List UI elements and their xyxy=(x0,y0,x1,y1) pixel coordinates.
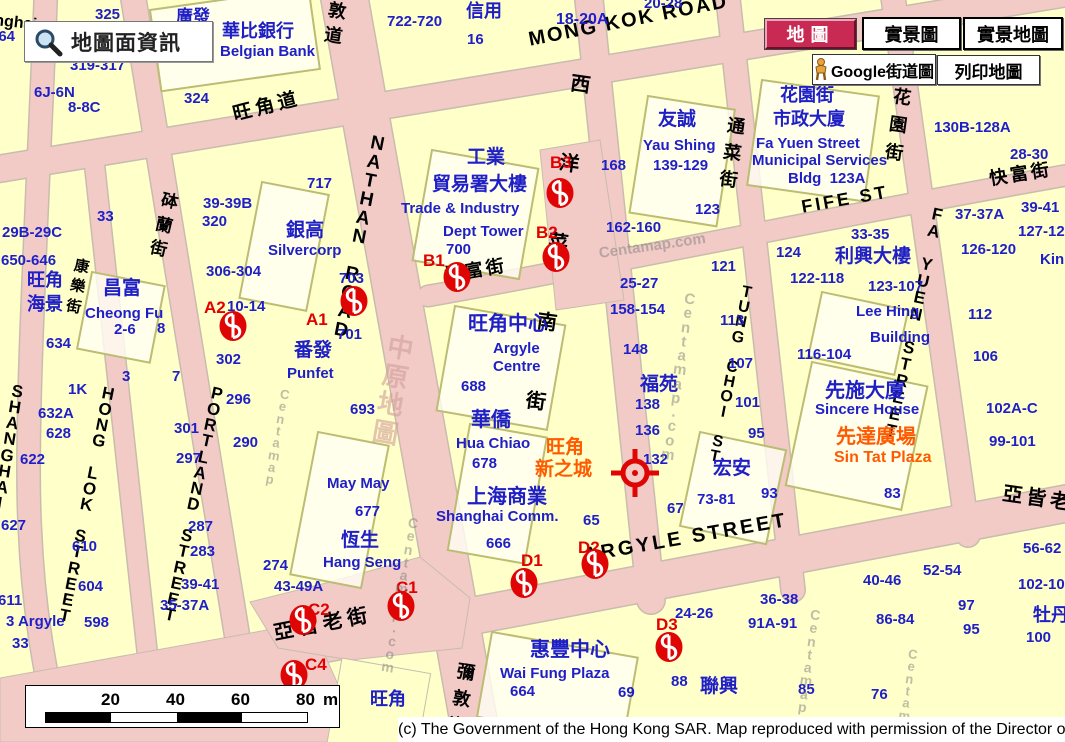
map-label: 聯興 xyxy=(700,677,738,697)
map-label: 717 xyxy=(307,176,332,192)
map-label: 158-154 xyxy=(610,302,665,318)
map-info-search[interactable]: 地圖面資訊 xyxy=(24,21,213,62)
crosshair-icon xyxy=(609,447,661,499)
map-label: 25-27 xyxy=(620,276,658,292)
map-label: 新之城 xyxy=(535,460,592,480)
map-label: 39-41 xyxy=(1021,200,1059,216)
map-label: 306-304 xyxy=(206,264,261,280)
scale-tick: 80 xyxy=(296,690,315,710)
map-label: 華僑 xyxy=(471,410,511,431)
scale-segment xyxy=(46,713,111,722)
map-label: Fa Yuen Street xyxy=(756,136,860,152)
map-label: 20-28 xyxy=(644,0,682,12)
map-label: 76 xyxy=(871,687,888,703)
map-label: 634 xyxy=(46,336,71,352)
map-label: 101 xyxy=(735,395,760,411)
map-label: 37-37A xyxy=(955,207,1004,223)
mtr-exit-marker-B3 xyxy=(546,177,574,209)
scale-tick: 60 xyxy=(231,690,250,710)
map-label: 102A-C xyxy=(986,401,1038,417)
mtr-exit-marker-C2 xyxy=(289,604,317,636)
real-scene-button[interactable]: 實景圖 xyxy=(862,17,961,50)
map-label: 貿易署大樓 xyxy=(432,175,527,195)
map-label: Building xyxy=(870,330,930,346)
map-label: Punfet xyxy=(287,366,334,382)
scale-segment xyxy=(242,713,307,722)
map-label: Belgian Bank xyxy=(220,44,315,60)
print-map-button[interactable]: 列印地圖 xyxy=(937,55,1040,85)
map-label: 301 xyxy=(174,421,199,437)
map-label: B3 xyxy=(550,154,572,172)
map-label: 722-720 xyxy=(387,14,442,30)
mtr-exit-marker-D3 xyxy=(655,631,683,663)
mtr-exit-marker-B1 xyxy=(443,261,471,293)
map-label: Cheong Fu xyxy=(85,306,163,322)
map-label: 昌富 xyxy=(103,279,141,299)
map-label: 67 xyxy=(667,501,684,517)
map-label: 18-20A xyxy=(556,12,608,29)
map-label: 102-104 xyxy=(1018,577,1065,593)
copyright-text: (c) The Government of the Hong Kong SAR.… xyxy=(398,721,1065,739)
map-label: 36-38 xyxy=(760,592,798,608)
map-label: 52-54 xyxy=(923,563,961,579)
map-label: C4 xyxy=(305,656,327,674)
map-label: 283 xyxy=(190,544,215,560)
map-label: 139-129 xyxy=(653,158,708,174)
map-label: 旺角 xyxy=(370,690,406,709)
map-label: 29B-29C xyxy=(2,225,62,241)
map-label: May May xyxy=(327,476,390,492)
map-label: 701 xyxy=(337,327,362,343)
map-label: 43-49A xyxy=(274,579,323,595)
map-label: Sin Tat Plaza xyxy=(834,450,932,467)
map-label: Trade & Industry xyxy=(401,201,519,217)
map-label: 3 Argyle xyxy=(6,614,65,630)
map-label: 124 xyxy=(776,245,801,261)
map-label: 7 xyxy=(172,369,180,385)
map-label: 市政大廈 xyxy=(773,110,845,129)
map-label: 127-125 xyxy=(1018,224,1065,240)
map-label: 130B-128A xyxy=(934,120,1011,136)
map-label: 302 xyxy=(216,352,241,368)
map-label: Lee Hing xyxy=(856,304,919,320)
map-label: 69 xyxy=(618,685,635,701)
map-label: 622 xyxy=(20,452,45,468)
map-label: 28-30 xyxy=(1010,147,1048,163)
map-label: B1 xyxy=(423,252,445,270)
map-label: 39-39B xyxy=(203,196,252,212)
scale-segment xyxy=(111,713,176,722)
map-label: 73-81 xyxy=(697,492,735,508)
mtr-exit-marker-D2 xyxy=(581,548,609,580)
map-label: 旺角中心 xyxy=(468,314,548,335)
map-label: 宏安 xyxy=(713,459,751,479)
map-label: 627 xyxy=(1,518,26,534)
map-label: 296 xyxy=(226,392,251,408)
map-label: 旺角 xyxy=(546,438,584,458)
map-label: Municipal Services xyxy=(752,153,887,169)
map-label: 39-41 xyxy=(181,577,219,593)
map-label: 610 xyxy=(72,539,97,555)
scale-segment xyxy=(177,713,242,722)
map-label: 650-646 xyxy=(1,253,56,269)
map-label: 56-62 xyxy=(1023,541,1061,557)
map-label: 121 xyxy=(711,259,736,275)
map-label: 664 xyxy=(510,684,535,700)
scale-bar: m 20406080 xyxy=(25,685,340,728)
map-label: 旺角 xyxy=(27,271,63,290)
map-label: 664 xyxy=(0,29,15,45)
map-label: 16 xyxy=(467,32,484,48)
map-label: B2 xyxy=(536,224,558,242)
map-label: 678 xyxy=(472,456,497,472)
map-label: 33 xyxy=(12,636,29,652)
map-label: 95 xyxy=(748,426,765,442)
map-label: A1 xyxy=(306,311,328,329)
map-label: 恆生 xyxy=(341,531,379,551)
map-label: 604 xyxy=(78,579,103,595)
map-label: 677 xyxy=(355,504,380,520)
map-label: 693 xyxy=(350,402,375,418)
map-label: 162-160 xyxy=(606,220,661,236)
map-tab-button[interactable]: 地圖 xyxy=(765,19,856,49)
map-label: 688 xyxy=(461,379,486,395)
map-label: 先達廣場 xyxy=(836,427,916,448)
map-label: 93 xyxy=(761,486,778,502)
map-label: 112 xyxy=(968,307,992,323)
map-label: 88 xyxy=(671,674,688,690)
map-label: 666 xyxy=(486,536,511,552)
map-label: 598 xyxy=(84,615,109,631)
map-label: Centre xyxy=(493,359,541,375)
map-label: 銀高 xyxy=(286,221,324,241)
map-label: 274 xyxy=(263,558,288,574)
copyright-bar: (c) The Government of the Hong Kong SAR.… xyxy=(398,717,1065,742)
map-label: 106 xyxy=(973,349,998,365)
map-label: 632A xyxy=(38,406,74,422)
map-label: 24-26 xyxy=(675,606,713,622)
map-label: 牡丹 xyxy=(1033,606,1065,625)
map-label: Shanghai Comm. xyxy=(436,509,559,525)
map-label: 122-118 xyxy=(790,271,844,287)
scale-tick: 40 xyxy=(166,690,185,710)
map-label: 138 xyxy=(635,397,660,413)
mtr-exit-marker-A1 xyxy=(340,285,368,317)
map-label: 86-84 xyxy=(876,612,914,628)
map-label: 116-104 xyxy=(797,347,851,363)
map-label: 320 xyxy=(202,214,227,230)
map-label: 297 xyxy=(176,451,201,467)
map-label: 3 xyxy=(122,369,130,385)
map-label: 8-8C xyxy=(68,100,101,116)
map-info-label: 地圖面資訊 xyxy=(71,27,181,57)
google-street-view-label: Google街道圖 xyxy=(831,58,934,82)
map-label: 290 xyxy=(233,435,258,451)
map-label: 友誠 xyxy=(658,110,696,130)
map-label: 信用 xyxy=(466,2,502,21)
map-label: 利興大樓 xyxy=(835,247,911,267)
map-label: 324 xyxy=(184,91,209,107)
map-label: 華比銀行 xyxy=(222,22,294,41)
google-street-view-button[interactable]: Google街道圖 xyxy=(812,54,936,85)
map-label: 126-120 xyxy=(961,242,1016,258)
scale-bar-segments xyxy=(45,712,308,723)
map-label: 287 xyxy=(188,519,213,535)
scale-bar-unit: m xyxy=(323,690,338,710)
map-label: 100 xyxy=(1026,630,1051,646)
map-label: Dept Tower xyxy=(443,224,524,240)
map-label: Silvercorp xyxy=(268,243,341,259)
map-label: Yau Shing xyxy=(643,138,716,154)
pegman-icon xyxy=(814,58,828,82)
map-label: 33 xyxy=(97,209,114,225)
map-label: Wai Fung Plaza xyxy=(500,666,609,682)
map-label: 123 xyxy=(695,202,720,218)
map-label: 惠豐中心 xyxy=(530,640,610,661)
map-label: 花園街 xyxy=(780,86,834,105)
search-icon xyxy=(33,27,63,57)
map-label: Hua Chiao xyxy=(456,436,530,452)
map-label: 2-6 xyxy=(114,322,136,338)
map-label: 148 xyxy=(623,342,648,358)
scale-tick: 20 xyxy=(101,690,120,710)
map-label: 113 xyxy=(720,313,744,329)
map-label: 40-46 xyxy=(863,573,901,589)
map-label: 136 xyxy=(635,423,660,439)
map-label: 168 xyxy=(601,158,626,174)
map-label: 91A-91 xyxy=(748,616,797,632)
map-label: 工業 xyxy=(467,148,505,168)
map-label: 8 xyxy=(157,321,165,337)
mtr-exit-marker-D1 xyxy=(510,567,538,599)
mtr-exit-marker-B2 xyxy=(542,241,570,273)
map-label: 700 xyxy=(446,242,471,258)
map-label: 611 xyxy=(0,593,22,609)
map-label: 33-35 xyxy=(851,227,889,243)
map-label: Argyle xyxy=(493,341,540,357)
map-label: 海景 xyxy=(27,295,63,314)
map-label: 1K xyxy=(68,382,87,398)
map-label: 95 xyxy=(963,622,980,638)
map-canvas[interactable]: MONG KOK ROAD旺角道N A T H A N R O A D砵 蘭 街… xyxy=(0,0,1065,742)
map-label: 123-107 xyxy=(868,279,923,295)
map-label: 83 xyxy=(884,486,901,502)
map-label: 628 xyxy=(46,426,71,442)
map-label: Kin Wah xyxy=(1040,252,1065,268)
map-label: 先施大廈 xyxy=(825,381,905,402)
map-label: 番發 xyxy=(294,341,332,361)
map-label: 35-37A xyxy=(160,598,209,614)
real-scene-map-button[interactable]: 實景地圖 xyxy=(963,17,1063,50)
map-label: 107 xyxy=(728,356,753,372)
map-label: 99-101 xyxy=(989,434,1036,450)
map-label: Hang Seng xyxy=(323,555,401,571)
mtr-exit-marker-A2 xyxy=(219,310,247,342)
map-label: 97 xyxy=(958,598,975,614)
mtr-exit-marker-C1 xyxy=(387,590,415,622)
map-label: 上海商業 xyxy=(467,487,547,508)
map-label: 65 xyxy=(583,513,600,529)
map-label: Bldg 123A xyxy=(788,171,866,187)
map-label: Sincere House xyxy=(815,402,919,418)
